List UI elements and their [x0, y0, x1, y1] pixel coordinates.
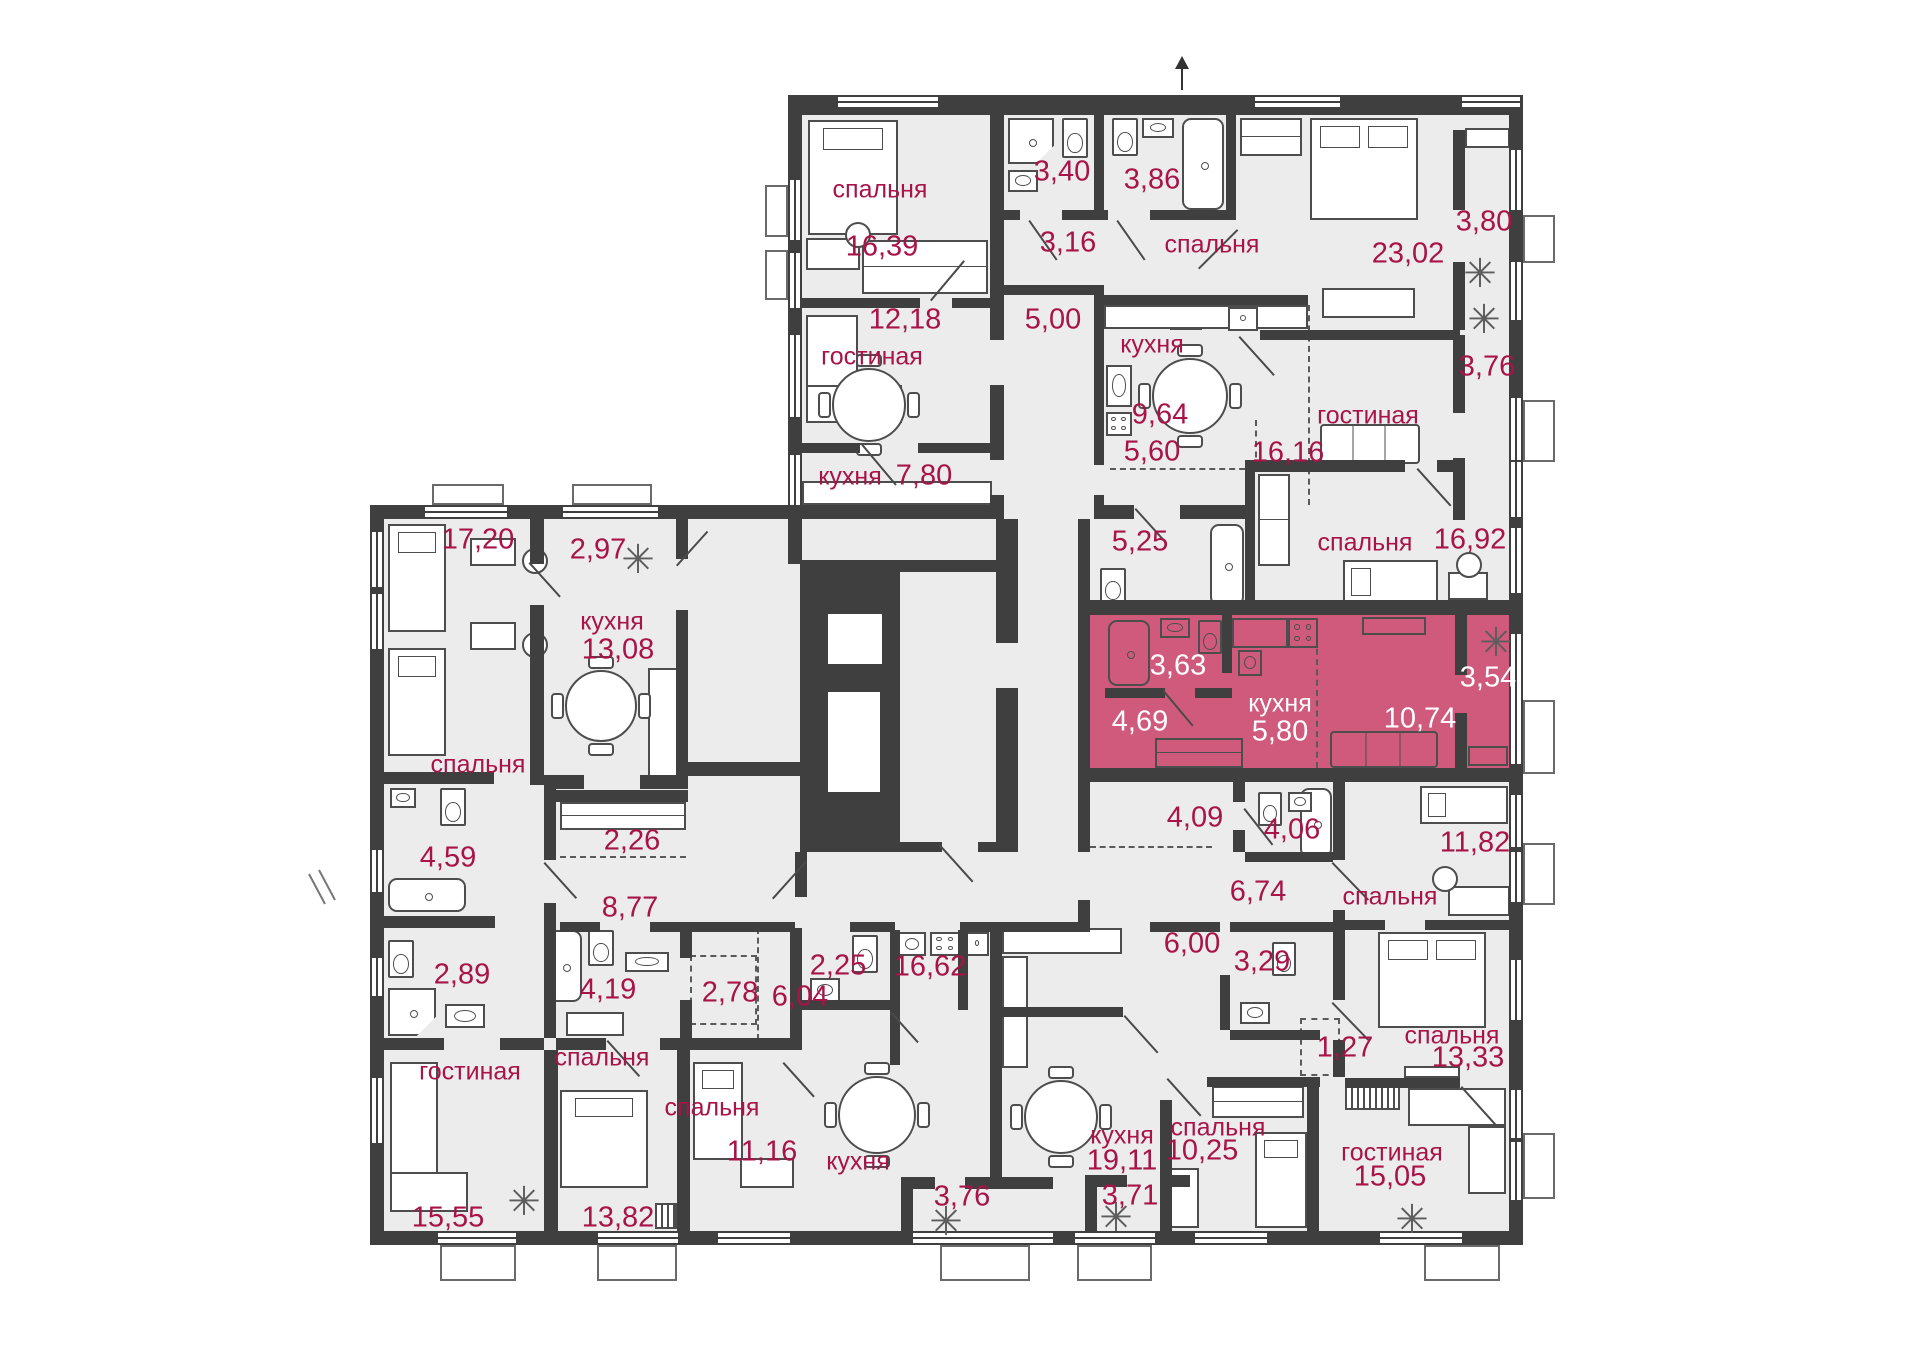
window	[788, 335, 802, 417]
bathtub-icon	[1182, 118, 1224, 210]
toilet-bowl	[1067, 133, 1082, 154]
window-sill	[1424, 1245, 1500, 1281]
wall	[1104, 295, 1308, 305]
wall	[990, 95, 1004, 340]
elevator-shaft	[826, 690, 882, 794]
window	[1509, 795, 1523, 847]
burner	[1306, 636, 1312, 642]
room-area-label: 4,19	[580, 974, 636, 1007]
burner	[1294, 636, 1300, 642]
sink-basin	[905, 938, 919, 950]
room-area-label: 16,92	[1434, 524, 1507, 557]
room-area-label: 7,80	[896, 460, 952, 493]
floor-plan-screenshot: лифт лифт лифтовый холл межквартирный хо…	[0, 0, 1920, 1358]
pillow-icon	[1368, 126, 1408, 148]
wall	[1233, 830, 1245, 852]
wall	[905, 1177, 935, 1189]
handle	[975, 940, 979, 946]
wall	[1245, 852, 1333, 862]
wall	[676, 610, 688, 775]
wall	[918, 443, 994, 453]
window	[838, 95, 938, 109]
room-area-label: 16,16	[1252, 437, 1325, 470]
window	[1462, 95, 1520, 109]
window	[788, 253, 802, 308]
window	[1509, 398, 1523, 460]
sofa-icon	[1330, 731, 1438, 768]
wardrobe-striped-icon	[655, 1203, 677, 1229]
bathtub-icon	[388, 878, 466, 912]
wardrobe-striped-icon	[1345, 1086, 1400, 1110]
wall	[1160, 1175, 1190, 1187]
room-area-label: 15,05	[1354, 1161, 1427, 1194]
sink-basin	[635, 957, 659, 967]
chair-icon	[1048, 1066, 1074, 1079]
window	[788, 455, 802, 505]
room-name-label: спальня	[1343, 883, 1438, 912]
wall	[1078, 615, 1090, 782]
kitchen-counter-icon	[1104, 305, 1308, 329]
bed-icon	[1420, 786, 1508, 824]
wall	[1207, 1077, 1320, 1087]
wall	[952, 298, 994, 308]
wall	[1345, 1078, 1460, 1088]
desk-icon	[566, 1012, 624, 1036]
room-area-label: 6,74	[1230, 876, 1286, 909]
window-sill	[1523, 400, 1555, 462]
wall	[1078, 900, 1090, 922]
room-name-label: гостиная	[821, 343, 923, 372]
wall	[900, 560, 996, 572]
toilet-icon	[588, 930, 614, 966]
bed-icon	[1343, 560, 1438, 604]
room-area-label: 13,82	[582, 1202, 655, 1235]
bathtub-icon	[1210, 524, 1244, 606]
dashed-line	[1090, 846, 1212, 848]
room-area-label: 8,77	[602, 892, 658, 925]
wall	[1180, 505, 1255, 519]
wall	[1230, 922, 1333, 932]
room-name-label: спальня	[1165, 231, 1260, 260]
room-area-label: 3,54	[1460, 662, 1516, 695]
wall	[800, 842, 942, 852]
room-area-label: 4,09	[1167, 802, 1223, 835]
toilet-bowl	[1203, 633, 1217, 650]
handle	[1240, 315, 1246, 321]
room-name-label: гостиная	[1317, 402, 1419, 431]
wall	[1062, 210, 1108, 220]
bed-icon	[1310, 118, 1418, 220]
window	[1509, 852, 1523, 902]
sink-basin	[1167, 623, 1183, 633]
bed-icon	[560, 1090, 648, 1188]
wall	[1245, 460, 1255, 600]
room-area-label: 3,80	[1456, 206, 1512, 239]
wall	[990, 928, 1002, 1178]
pillow-icon	[1264, 1140, 1298, 1158]
toilet-bowl	[445, 802, 460, 822]
wall	[1260, 330, 1460, 340]
shelf-icon	[1465, 128, 1510, 148]
plant-icon: ✳	[507, 1182, 541, 1222]
room-name-label: кухня	[826, 1148, 890, 1177]
bed-icon	[1378, 932, 1486, 1028]
wall	[1105, 688, 1165, 698]
stove-icon	[1288, 618, 1318, 648]
toilet-bowl	[393, 954, 408, 974]
burner	[1306, 624, 1312, 630]
room-name-label: кухня	[818, 463, 882, 492]
wall	[1195, 688, 1232, 698]
window-sill	[597, 1245, 677, 1281]
room-area-label: 1,27	[1317, 1032, 1373, 1065]
room-area-label: 12,18	[869, 304, 942, 337]
window-sill	[765, 185, 788, 237]
window	[370, 1078, 384, 1143]
wall	[544, 928, 556, 1038]
room-area-label: 3,71	[1102, 1180, 1158, 1213]
room-area-label: 13,08	[582, 634, 655, 667]
window	[1509, 960, 1523, 1020]
room-area-label: 5,00	[1025, 304, 1081, 337]
room-name-label: спальня	[833, 176, 928, 205]
burner	[1111, 417, 1116, 421]
chair-icon	[1229, 383, 1242, 409]
room-area-label: 2,97	[570, 534, 626, 567]
window	[425, 505, 507, 519]
wall	[1226, 95, 1236, 220]
room-area-label: 3,40	[1034, 156, 1090, 189]
sink-icon	[1106, 365, 1132, 407]
window	[370, 532, 384, 587]
room-area-label: 19,11	[1087, 1145, 1157, 1178]
wall	[1233, 782, 1245, 802]
room-area-label: 3,63	[1150, 650, 1206, 683]
wall	[500, 1038, 544, 1050]
sink-icon	[1288, 792, 1312, 812]
room-area-label: 23,02	[1372, 238, 1445, 271]
plant-icon: ✳	[1479, 623, 1513, 663]
window	[1509, 262, 1523, 320]
wall	[850, 922, 895, 932]
chair-icon	[824, 1102, 837, 1128]
wall	[788, 519, 802, 564]
plant-icon: ✳	[1467, 300, 1501, 340]
room-area-label: 2,26	[604, 825, 660, 858]
wall	[1230, 1030, 1320, 1040]
chair-icon	[551, 693, 564, 719]
room-area-label: 6,00	[1164, 928, 1220, 961]
window	[1509, 1090, 1523, 1138]
wall	[680, 928, 692, 958]
pillow-icon	[1320, 126, 1360, 148]
burner	[1294, 624, 1300, 630]
room-area-label: 3,29	[1234, 946, 1290, 979]
window-sill	[1523, 843, 1555, 905]
wall	[996, 688, 1018, 842]
burner	[1121, 417, 1126, 421]
pillow-icon	[398, 532, 436, 553]
wall	[677, 1050, 690, 1231]
room-area-label: 2,78	[702, 977, 758, 1010]
wall	[1004, 285, 1104, 295]
window-sill	[1523, 215, 1555, 263]
window-sill	[432, 484, 504, 505]
window-sill	[440, 1245, 516, 1281]
room-area-label: 3,16	[1040, 227, 1096, 260]
wardrobe-icon	[1240, 118, 1302, 156]
tv-stand-icon	[1362, 617, 1426, 635]
sink-icon	[1238, 650, 1262, 676]
window-sill	[1523, 700, 1555, 774]
sink-icon	[1160, 618, 1190, 638]
chair-icon	[907, 392, 920, 418]
wall	[1333, 910, 1345, 1000]
pillow-icon	[1428, 793, 1446, 817]
toilet-icon	[440, 788, 466, 826]
window	[370, 958, 384, 996]
room-area-label: 5,80	[1252, 716, 1308, 749]
wall	[990, 495, 1004, 519]
dining-table-icon	[565, 670, 637, 742]
desk-icon	[470, 622, 516, 650]
room-area-label: 3,76	[934, 1181, 990, 1214]
toilet-bowl	[1105, 581, 1120, 600]
shelf-icon	[1468, 746, 1508, 766]
window	[1509, 150, 1523, 210]
toilet-icon	[388, 940, 414, 978]
room-area-label: 5,60	[1124, 436, 1180, 469]
plant-icon: ✳	[1395, 1200, 1429, 1240]
sink-icon	[625, 952, 669, 972]
wall	[1437, 460, 1460, 472]
room-name-label: спальня	[555, 1044, 650, 1073]
burner	[1121, 426, 1126, 430]
window	[1255, 95, 1340, 109]
room-name-label: кухня	[580, 608, 644, 637]
room-area-label: 17,20	[442, 524, 515, 557]
sink-basin	[1294, 797, 1306, 807]
wall	[544, 903, 556, 928]
pillow-icon	[823, 128, 883, 150]
sink-icon	[1240, 1002, 1270, 1024]
room-area-label: 10,25	[1166, 1135, 1239, 1168]
toilet-icon	[1100, 568, 1126, 604]
pillow-icon	[1436, 940, 1476, 960]
pillow-icon	[575, 1098, 634, 1117]
room-area-label: 3,76	[1459, 351, 1515, 384]
room-area-label: 6,04	[772, 981, 828, 1014]
wall	[676, 762, 800, 776]
chair-icon	[864, 1062, 890, 1075]
chair-icon	[818, 392, 831, 418]
room-area-label: 4,69	[1112, 706, 1168, 739]
toilet-icon	[1062, 118, 1088, 158]
pillow-icon	[1351, 568, 1371, 596]
wall	[1094, 295, 1104, 465]
tv-stand-icon	[1322, 288, 1415, 318]
drain-icon	[1201, 162, 1209, 170]
wardrobe-icon	[1155, 738, 1243, 768]
room-name-label: спальня	[665, 1094, 760, 1123]
wall	[1220, 975, 1230, 1030]
pillow-icon	[1388, 940, 1428, 960]
wall	[384, 1038, 444, 1050]
bathtub-icon	[1108, 620, 1150, 686]
pillow-icon	[702, 1070, 734, 1089]
plant-icon: ✳	[621, 540, 655, 580]
furniture-icon	[1468, 1126, 1506, 1194]
drain-icon	[563, 964, 571, 972]
room-area-label: 2,25	[810, 950, 866, 983]
wall	[1078, 782, 1090, 852]
wall	[1150, 210, 1232, 220]
room-area-label: 4,06	[1264, 814, 1320, 847]
wall	[1085, 1175, 1097, 1231]
desk-icon	[1448, 886, 1510, 916]
chair-icon	[917, 1102, 930, 1128]
window	[788, 180, 802, 240]
room-area-label: 15,55	[412, 1202, 485, 1235]
pillow-icon	[398, 656, 436, 677]
wall	[560, 922, 600, 932]
wall	[556, 790, 688, 802]
room-area-label: 11,82	[1440, 827, 1510, 860]
wall	[802, 443, 860, 453]
burner	[1111, 426, 1116, 430]
dining-table-icon	[832, 368, 906, 442]
wall	[990, 385, 1004, 460]
window-sill	[1523, 1133, 1555, 1199]
window-sill	[765, 250, 788, 300]
stove-icon	[1106, 412, 1132, 436]
kitchen-counter-icon	[1232, 618, 1288, 648]
elevator-shaft	[826, 612, 884, 666]
room-area-label: 11,16	[727, 1136, 797, 1169]
wall	[1104, 505, 1134, 519]
north-marker-icon	[1172, 56, 1192, 90]
room-area-label: 13,33	[1432, 1042, 1505, 1075]
toilet-icon	[1112, 118, 1138, 156]
dining-table-icon	[838, 1076, 916, 1154]
wall	[384, 916, 495, 928]
dining-table-icon	[1024, 1080, 1098, 1154]
wall	[1345, 920, 1385, 930]
window-sill	[940, 1245, 1030, 1281]
drain-icon	[425, 893, 433, 901]
drain-icon	[410, 1010, 418, 1018]
chair-icon	[1010, 1104, 1023, 1130]
burner	[948, 937, 954, 941]
room-name-label: кухня	[1120, 331, 1184, 360]
window	[370, 850, 384, 892]
wall	[960, 922, 1090, 932]
wardrobe-icon	[1258, 474, 1290, 566]
kitchen-counter-icon	[648, 668, 678, 778]
wall	[996, 519, 1018, 643]
sink-icon	[445, 1004, 485, 1028]
sink-icon	[1142, 118, 1174, 138]
room-area-label: 5,25	[1112, 526, 1168, 559]
wall	[650, 922, 795, 932]
room-area-label: 16,39	[846, 231, 919, 264]
drain-icon	[1029, 139, 1037, 147]
north-marker-stem	[1181, 66, 1183, 90]
floor-plan: лифт лифт лифтовый холл межквартирный хо…	[0, 0, 1920, 1358]
bed-icon	[388, 648, 446, 756]
room-area-label: 3,86	[1124, 164, 1180, 197]
sink-basin	[1150, 123, 1167, 133]
window-sill	[1077, 1245, 1152, 1281]
room-area-label: 2,89	[434, 959, 490, 992]
wall	[1222, 615, 1232, 673]
burner	[936, 937, 942, 941]
wall	[1004, 210, 1020, 220]
room-name-label: спальня	[431, 751, 526, 780]
toilet-bowl	[593, 943, 608, 962]
wall	[1453, 130, 1465, 210]
wall	[1094, 495, 1104, 519]
wall	[680, 1000, 692, 1038]
wall	[1333, 782, 1345, 860]
sink-icon	[390, 788, 416, 808]
window-sill	[572, 484, 652, 505]
drain-icon	[1225, 563, 1233, 571]
wall	[544, 775, 556, 860]
room-area-label: 4,59	[420, 842, 476, 875]
wall	[978, 842, 1018, 852]
wall	[530, 605, 544, 785]
sink-basin	[1247, 1007, 1263, 1018]
wall	[660, 1038, 790, 1050]
fridge-icon	[1228, 307, 1258, 331]
window	[563, 505, 658, 519]
toilet-bowl	[1117, 132, 1132, 152]
room-name-label: кухня	[1248, 690, 1312, 719]
sink-basin	[454, 1010, 476, 1022]
window	[1509, 1142, 1523, 1200]
chair-icon	[1177, 435, 1203, 448]
room-area-label: 9,64	[1132, 399, 1188, 432]
wall	[1307, 1077, 1319, 1231]
chair-icon	[638, 693, 651, 719]
wall	[1078, 768, 1523, 782]
wall	[544, 1050, 558, 1231]
chair-icon	[588, 743, 614, 756]
plant-icon: ✳	[1463, 254, 1497, 294]
wall	[640, 775, 688, 789]
bed-icon	[388, 524, 446, 632]
wall	[1002, 1007, 1123, 1017]
wall	[1094, 95, 1104, 210]
window	[1509, 528, 1523, 593]
room-name-label: спальня	[1318, 529, 1413, 558]
window	[1509, 462, 1523, 517]
wall	[530, 519, 544, 564]
wall	[1078, 600, 1509, 615]
room-area-label: 16,62	[894, 951, 967, 984]
chair-icon	[1048, 1155, 1074, 1168]
wall	[1455, 713, 1467, 768]
bed-icon	[1255, 1132, 1307, 1228]
sink-basin	[1244, 656, 1256, 669]
sink-basin	[1112, 374, 1125, 397]
window	[718, 1231, 790, 1245]
room-name-label: гостиная	[419, 1058, 521, 1087]
room-area-label: 10,74	[1384, 703, 1457, 736]
wall	[1425, 920, 1509, 930]
fridge-icon	[965, 932, 989, 956]
